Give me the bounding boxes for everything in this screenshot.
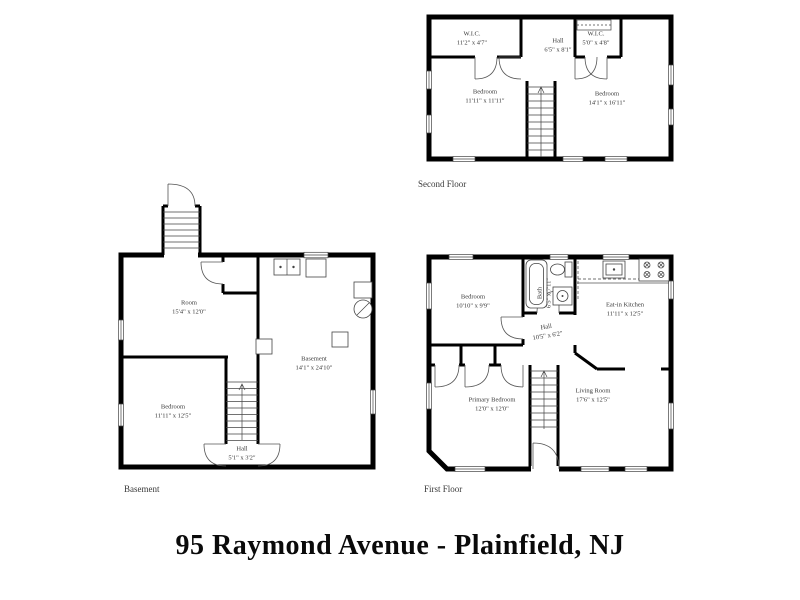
bulkhead-door-swing	[168, 184, 195, 206]
room-label-bedroom: Bedroom 11'11" x 12'5"	[155, 403, 191, 422]
laundry-sink-fixture	[274, 259, 300, 275]
water-heater-fixture	[354, 300, 372, 318]
room-dimensions: 6'5" x 8'1"	[544, 46, 571, 55]
room-dimensions: 5'1" x 3'2"	[228, 454, 255, 463]
room-dimensions: 17'6" x 12'5"	[576, 396, 611, 405]
basement-plan: Room 15'4" x 12'0" Bedroom 11'11" x 12'5…	[118, 182, 378, 472]
caption-first-floor: First Floor	[424, 484, 462, 494]
room-dimensions: 11'2" x 4'7"	[457, 39, 487, 48]
room-label-bedroom: Bedroom 10'10" x 9'9"	[456, 293, 490, 312]
room-label-primary-bedroom: Primary Bedroom 12'0" x 12'0"	[469, 396, 516, 415]
second-floor-plan: W.I.C. 11'2" x 4'7" Hall 6'5" x 8'1" W.I…	[425, 13, 675, 165]
room-name: Bedroom	[589, 90, 626, 99]
room-dimensions: 6'5" x 7'11"	[545, 278, 554, 308]
caption-second-floor: Second Floor	[418, 179, 466, 189]
room-name: Bedroom	[155, 403, 191, 412]
front-door-opening	[531, 466, 559, 472]
floor-plan-sheet: W.I.C. 11'2" x 4'7" Hall 6'5" x 8'1" W.I…	[0, 0, 800, 600]
room-dimensions: 10'10" x 9'9"	[456, 302, 490, 311]
room-dimensions: 11'11" x 11'11"	[465, 97, 504, 106]
property-address-title: 95 Raymond Avenue - Plainfield, NJ	[0, 530, 800, 562]
stove-fixture	[639, 259, 669, 281]
room-label-living-room: Living Room 17'6" x 12'5"	[576, 387, 611, 406]
room-dimensions: 11'11" x 12'5"	[606, 310, 644, 319]
exterior-walls	[121, 255, 373, 467]
bulkhead-stairs	[163, 184, 200, 255]
room-name: Primary Bedroom	[469, 396, 516, 405]
room-label-wic-left: W.I.C. 11'2" x 4'7"	[457, 30, 487, 49]
room-name: Bath	[536, 278, 545, 308]
bulkhead-opening	[164, 252, 198, 258]
room-dimensions: 5'0" x 4'8"	[582, 39, 609, 48]
room-name: W.I.C.	[582, 30, 609, 39]
room-name: Basement	[296, 355, 333, 364]
room-dimensions: 14'1" x 16'11"	[589, 99, 626, 108]
room-label-kitchen: Eat-in Kitchen 11'11" x 12'5"	[606, 301, 644, 320]
room-name: Bedroom	[456, 293, 490, 302]
room-label-hall: Hall 5'1" x 3'2"	[228, 445, 255, 464]
room-label-bedroom-left: Bedroom 11'11" x 11'11"	[465, 88, 504, 107]
room-label-basement: Basement 14'1" x 24'10"	[296, 355, 333, 374]
room-name: Hall	[544, 37, 571, 46]
first-floor-plan: Bedroom 10'10" x 9'9" Bath 6'5" x 7'11" …	[425, 253, 675, 473]
basement-plan-drawing	[118, 182, 378, 472]
room-name: Hall	[228, 445, 255, 454]
room-label-room: Room 15'4" x 12'0"	[172, 299, 206, 318]
room-label-bath: Bath 6'5" x 7'11"	[536, 278, 555, 308]
caption-basement: Basement	[124, 484, 160, 494]
room-name: Room	[172, 299, 206, 308]
utility-shelf-fixture	[354, 282, 372, 298]
room-label-wic-right: W.I.C. 5'0" x 4'8"	[582, 30, 609, 49]
attic-access-hatch	[577, 20, 611, 30]
equipment-fixture	[332, 332, 348, 347]
room-name: Eat-in Kitchen	[606, 301, 644, 310]
furnace-fixture	[256, 339, 272, 354]
room-label-hall: Hall 6'5" x 8'1"	[544, 37, 571, 56]
room-dimensions: 14'1" x 24'10"	[296, 364, 333, 373]
room-name: Living Room	[576, 387, 611, 396]
washer-fixture	[306, 259, 326, 277]
room-dimensions: 11'11" x 12'5"	[155, 412, 191, 421]
kitchen-sink-fixture	[603, 261, 625, 278]
room-name: Bedroom	[465, 88, 504, 97]
bathroom-sink-fixture	[553, 287, 572, 305]
room-dimensions: 12'0" x 12'0"	[469, 405, 516, 414]
room-label-bedroom-right: Bedroom 14'1" x 16'11"	[589, 90, 626, 109]
room-name: W.I.C.	[457, 30, 487, 39]
room-dimensions: 15'4" x 12'0"	[172, 308, 206, 317]
